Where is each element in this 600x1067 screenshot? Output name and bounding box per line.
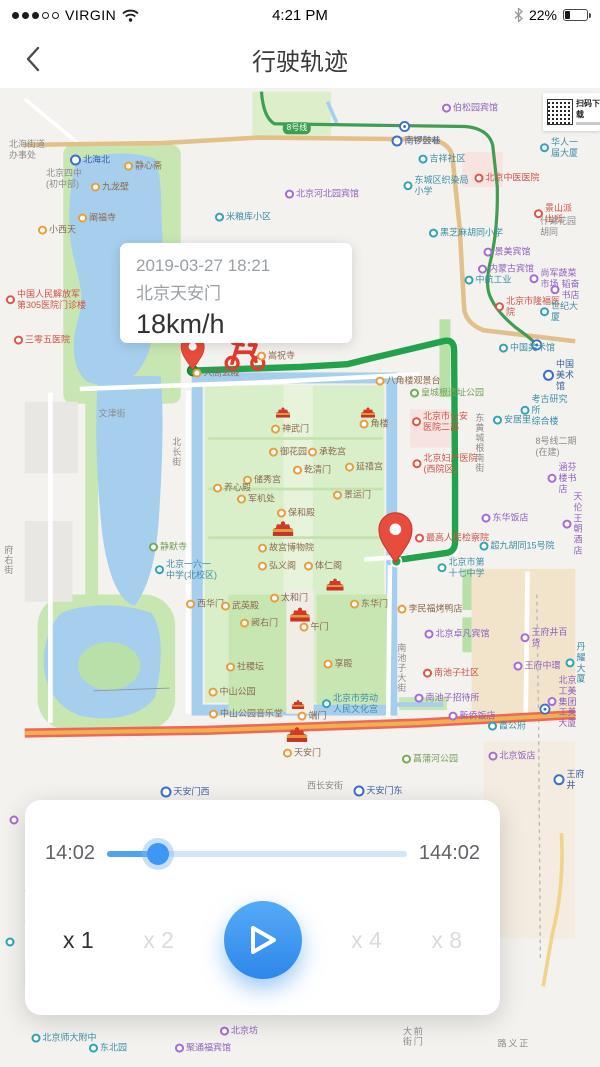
battery-icon bbox=[563, 9, 588, 21]
status-bar: 4:21 PM VIRGIN 22% bbox=[0, 0, 600, 30]
track-speed: 18km/h bbox=[136, 309, 336, 340]
qr-code-icon bbox=[547, 99, 573, 125]
page-title: 行驶轨迹 bbox=[252, 42, 348, 77]
road-nw bbox=[25, 99, 78, 143]
huangchenggen-strip bbox=[439, 319, 450, 397]
nanhai-island bbox=[78, 642, 140, 690]
bluetooth-icon bbox=[514, 8, 523, 22]
axis-corridor bbox=[286, 589, 314, 714]
play-icon bbox=[246, 922, 280, 958]
wangfujing-street bbox=[526, 572, 528, 716]
taimiao-park bbox=[317, 594, 390, 704]
speed-x2-button[interactable]: x 2 bbox=[143, 927, 174, 954]
total-time-label: 144:02 bbox=[419, 842, 480, 865]
progress-slider[interactable] bbox=[107, 851, 407, 857]
track-date: 2019-03-27 18:21 bbox=[136, 256, 336, 276]
speed-x8-button[interactable]: x 8 bbox=[431, 927, 462, 954]
green-strip-1 bbox=[462, 569, 471, 610]
nav-bar: 行驶轨迹 bbox=[0, 30, 600, 89]
current-time-label: 14:02 bbox=[45, 842, 95, 865]
zhonghai-lake bbox=[96, 376, 162, 605]
wifi-icon bbox=[122, 9, 139, 22]
speed-x4-button[interactable]: x 4 bbox=[351, 927, 382, 954]
track-info-card: 2019-03-27 18:21 北京天安门 18km/h bbox=[120, 243, 352, 343]
qr-download-label: 扫码下载 bbox=[576, 99, 600, 120]
speed-x1-button[interactable]: x 1 bbox=[63, 927, 94, 954]
carrier-name: VIRGIN bbox=[65, 7, 116, 23]
signal-strength-icon bbox=[12, 12, 59, 19]
play-button[interactable] bbox=[224, 901, 302, 979]
back-button[interactable] bbox=[16, 42, 50, 76]
battery-percent: 22% bbox=[529, 7, 557, 23]
progress-thumb[interactable] bbox=[147, 843, 169, 865]
metro-station-nanluoguxiang bbox=[400, 122, 409, 131]
metro-station-nmoca bbox=[532, 340, 541, 349]
zhongnanhai-green-west bbox=[85, 374, 98, 605]
nanchizi-street bbox=[388, 565, 390, 725]
hospital-block-2 bbox=[410, 409, 454, 448]
track-place: 北京天安门 bbox=[136, 279, 336, 304]
qr-download-badge[interactable]: 扫码下载 bbox=[543, 93, 600, 131]
playback-panel: 14:02 144:02 x 1 x 2 x 4 x 8 bbox=[25, 800, 500, 1015]
progress-slider-row: 14:02 144:02 bbox=[45, 842, 480, 865]
metro-station-wangfujing bbox=[540, 705, 549, 714]
wangfujing-block bbox=[472, 569, 576, 714]
green-strip-2 bbox=[462, 617, 471, 652]
qr-subtext-bar bbox=[576, 122, 600, 125]
speed-controls-row: x 1 x 2 x 4 x 8 bbox=[45, 901, 480, 979]
app-screen: 4:21 PM VIRGIN 22% 行驶轨迹 bbox=[0, 0, 600, 1067]
back-chevron-icon bbox=[25, 46, 41, 72]
park-block-ne bbox=[252, 92, 331, 136]
